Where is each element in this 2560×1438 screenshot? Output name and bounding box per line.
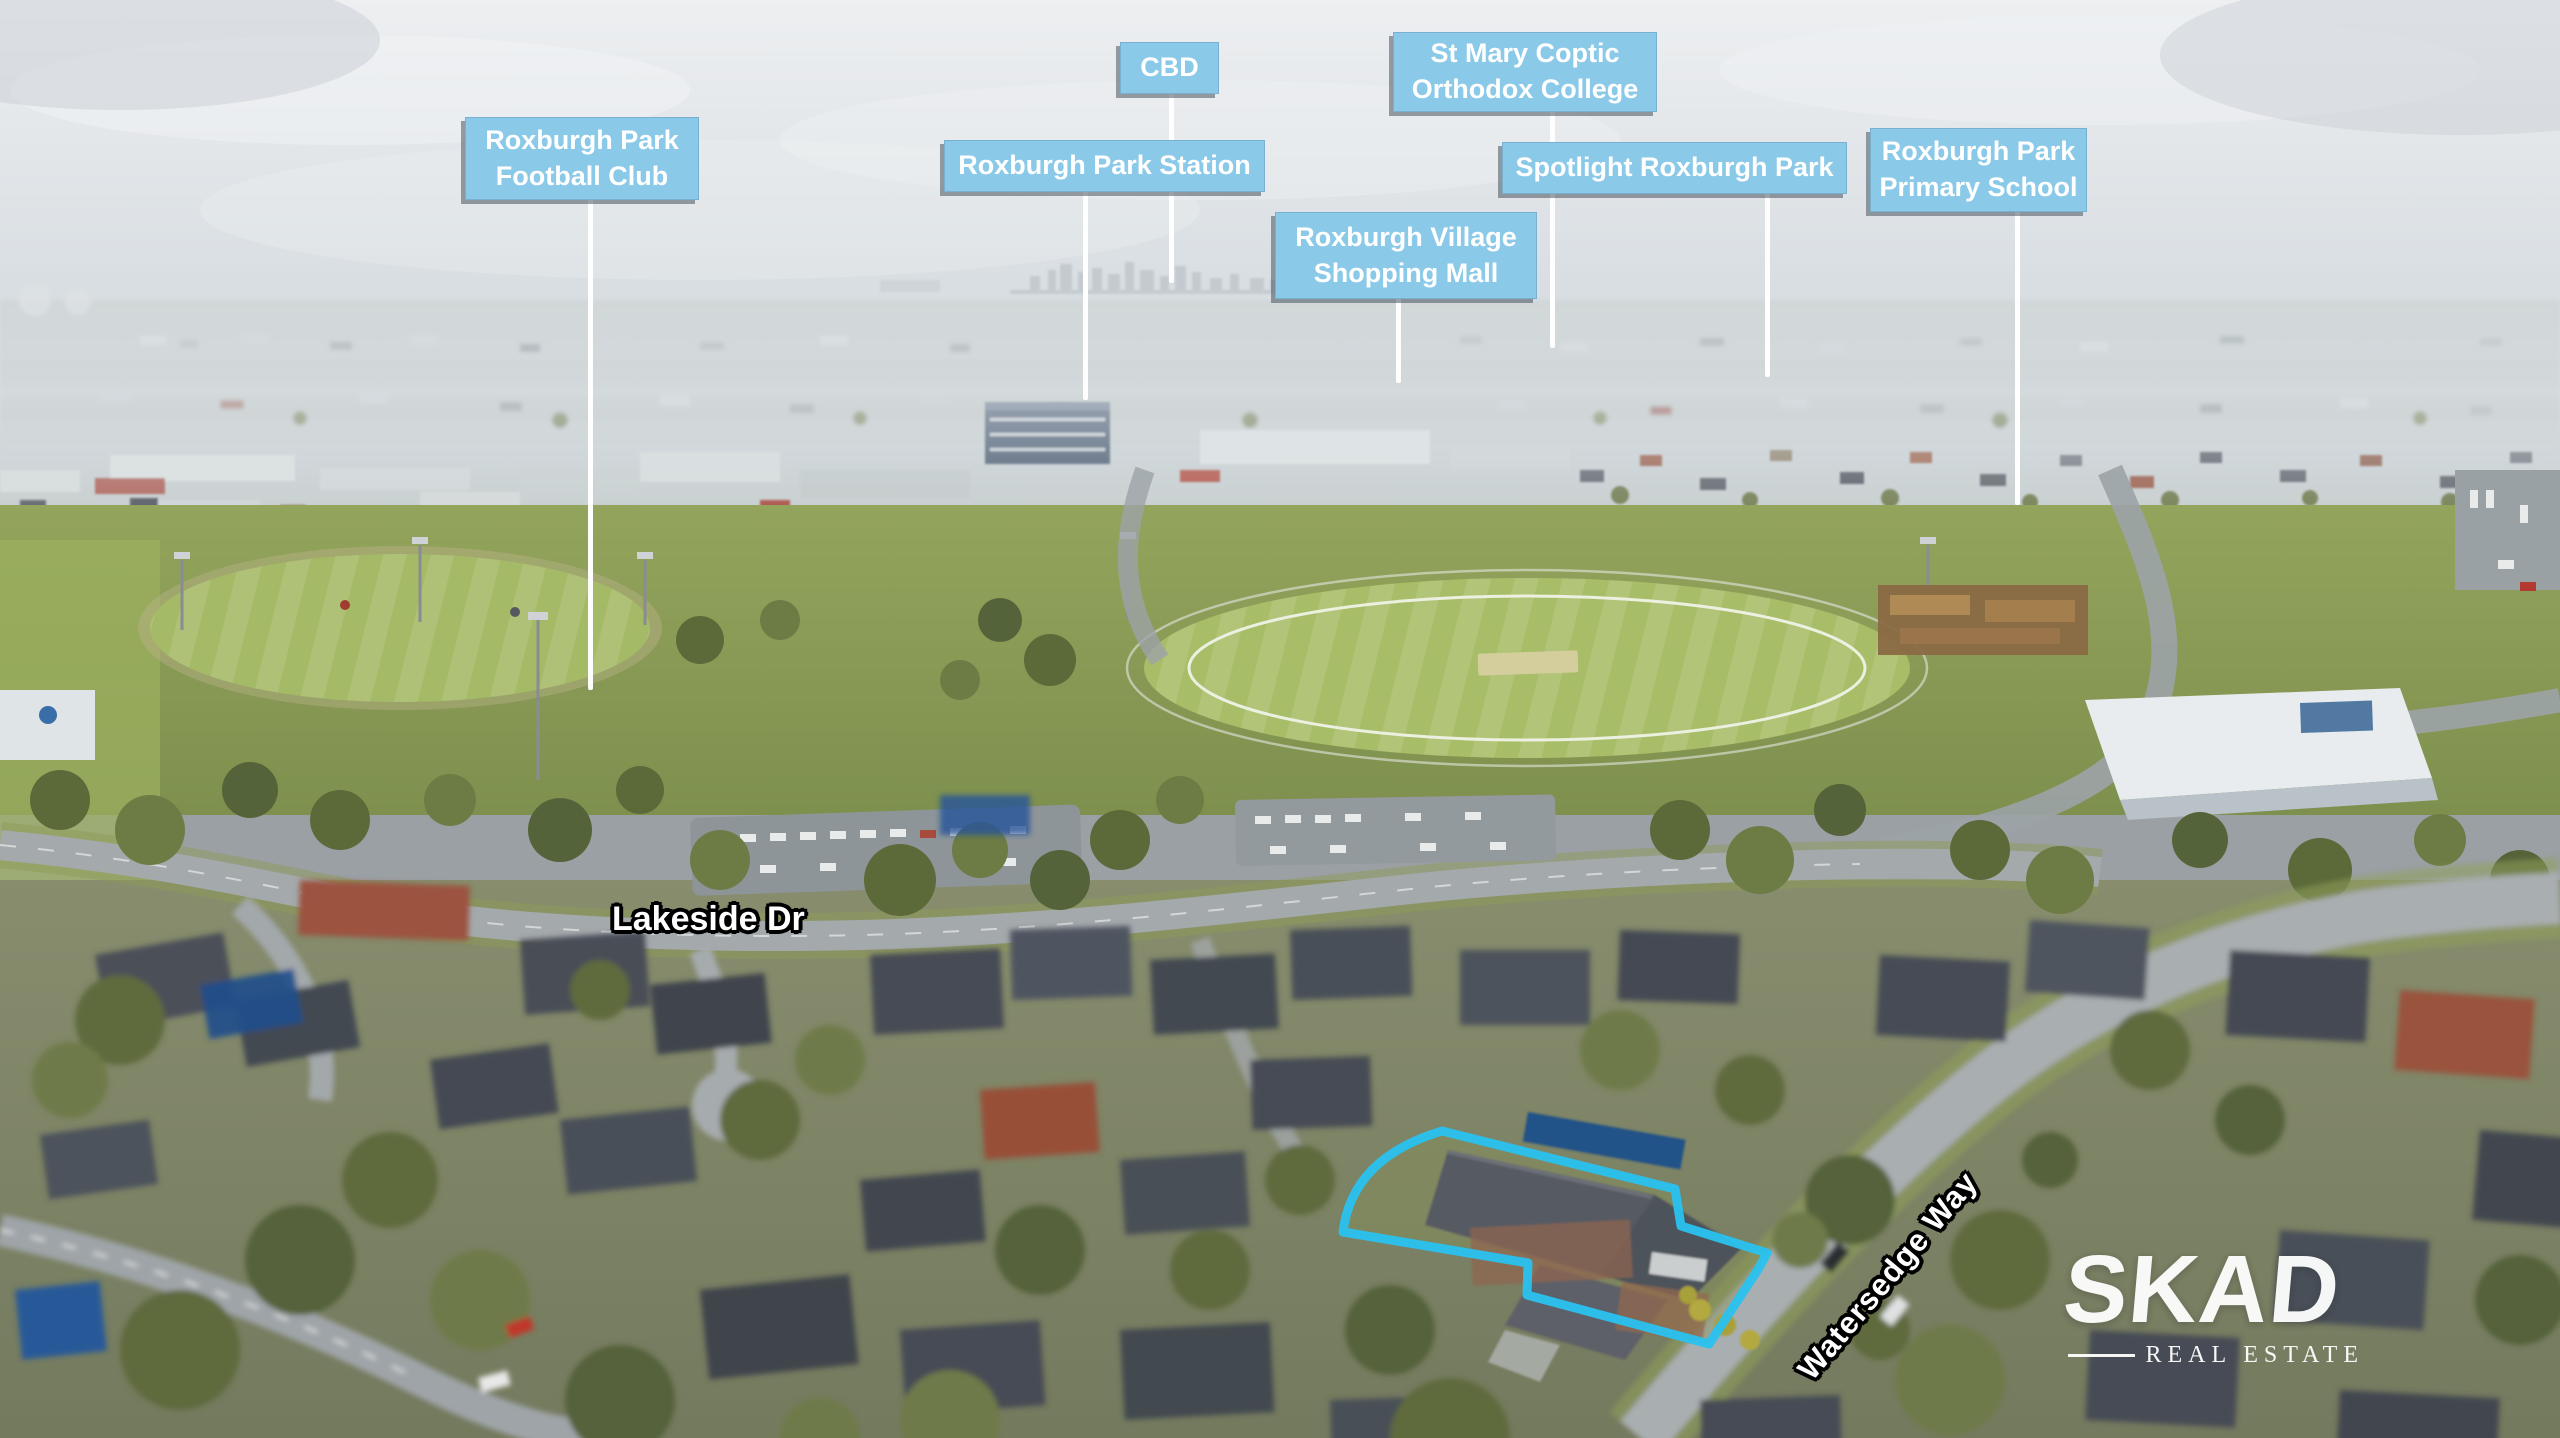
leader-line-spotlight (1765, 192, 1770, 377)
football-oval-left (138, 546, 662, 710)
callout-cbd: CBD (1120, 42, 1219, 94)
agency-tagline: REAL ESTATE (2145, 1342, 2364, 1369)
agency-watermark: SKAD REAL ESTATE (2064, 1242, 2364, 1369)
callout-spotlight: Spotlight Roxburgh Park (1502, 142, 1847, 194)
agency-brand-name: SKAD (2060, 1242, 2368, 1338)
leader-line-shopping-mall (1396, 297, 1401, 383)
tagline-rule (2068, 1354, 2135, 1357)
callout-shopping-mall: Roxburgh Village Shopping Mall (1275, 212, 1537, 299)
callout-station: Roxburgh Park Station (944, 140, 1265, 192)
street-label-lakeside-dr: Lakeside Dr (612, 900, 805, 939)
leader-line-football-club (588, 198, 593, 690)
callout-football-club: Roxburgh Park Football Club (465, 117, 699, 200)
callout-st-mary-college: St Mary Coptic Orthodox College (1393, 32, 1657, 112)
leader-line-primary-school (2015, 210, 2020, 505)
leader-line-station (1083, 190, 1088, 400)
aerial-photo-stage: Roxburgh Park Football Club CBD Roxburgh… (0, 0, 2560, 1438)
callout-primary-school: Roxburgh Park Primary School (1870, 128, 2087, 212)
agency-tagline-row: REAL ESTATE (2068, 1342, 2364, 1369)
